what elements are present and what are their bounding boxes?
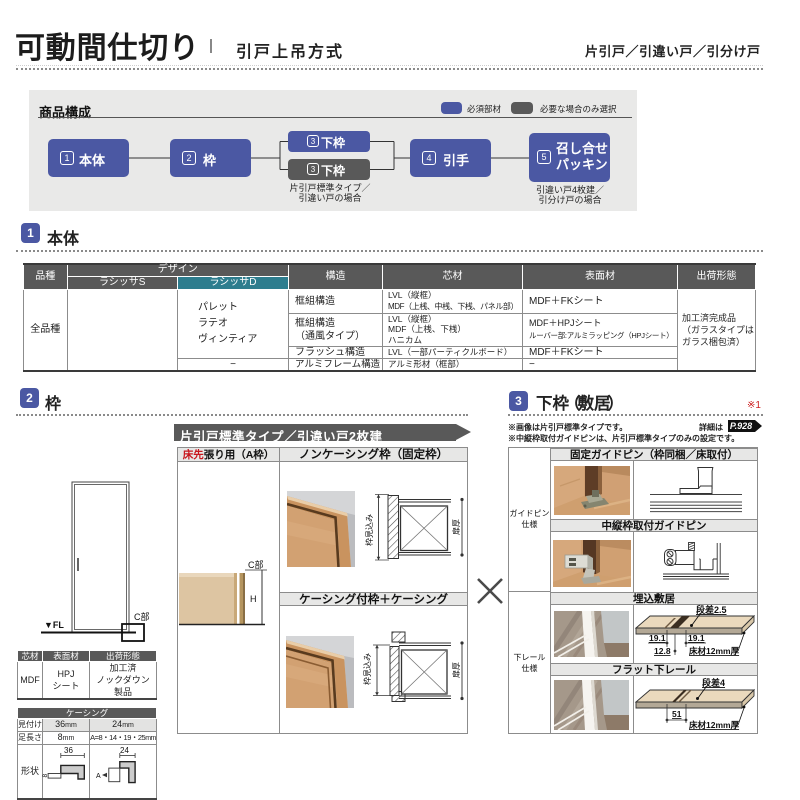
svg-text:36: 36 xyxy=(64,746,73,755)
svg-text:扉厚: 扉厚 xyxy=(451,662,461,678)
svg-text:C部: C部 xyxy=(134,611,150,622)
svg-text:A: A xyxy=(96,773,101,780)
svg-text:枠見込み: 枠見込み xyxy=(362,653,372,685)
svg-text:床材12mm厚: 床材12mm厚 xyxy=(689,646,740,656)
svg-text:C部: C部 xyxy=(248,559,264,570)
svg-text:19.1: 19.1 xyxy=(688,633,705,643)
svg-text:51: 51 xyxy=(672,709,682,719)
svg-text:12.8: 12.8 xyxy=(654,646,671,656)
svg-text:19.1: 19.1 xyxy=(649,633,666,643)
svg-text:段差4: 段差4 xyxy=(702,677,725,688)
svg-text:段差2.5: 段差2.5 xyxy=(696,604,727,615)
svg-text:8: 8 xyxy=(42,774,49,778)
svg-text:枠見込み: 枠見込み xyxy=(364,514,374,546)
svg-text:H: H xyxy=(250,594,257,604)
svg-text:▼FL: ▼FL xyxy=(44,620,64,630)
svg-text:扉厚: 扉厚 xyxy=(451,519,461,535)
svg-text:床材12mm厚: 床材12mm厚 xyxy=(689,720,740,730)
svg-text:24: 24 xyxy=(120,746,129,755)
